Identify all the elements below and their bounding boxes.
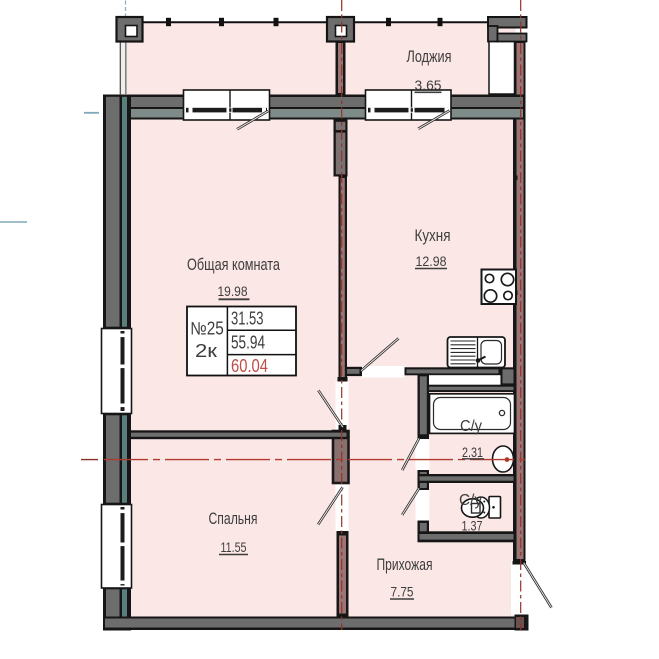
svg-text:С/у: С/у <box>460 418 482 435</box>
svg-text:№25: №25 <box>190 319 224 339</box>
svg-text:Лоджия: Лоджия <box>407 48 452 66</box>
svg-text:11.55: 11.55 <box>221 539 247 555</box>
svg-text:3.65: 3.65 <box>415 77 442 93</box>
svg-text:2к: 2к <box>195 341 217 361</box>
svg-text:1.37: 1.37 <box>462 518 483 534</box>
svg-text:55.94: 55.94 <box>231 332 265 353</box>
svg-text:60.04: 60.04 <box>231 355 268 376</box>
svg-text:Кухня: Кухня <box>415 227 451 245</box>
svg-text:С/у: С/у <box>459 492 482 509</box>
svg-text:7.75: 7.75 <box>391 584 414 600</box>
svg-text:19.98: 19.98 <box>218 283 248 299</box>
svg-text:12.98: 12.98 <box>416 253 447 269</box>
svg-text:2.31: 2.31 <box>462 444 483 460</box>
svg-text:Общая комната: Общая комната <box>187 256 281 274</box>
svg-text:Прихожая: Прихожая <box>377 556 433 574</box>
svg-text:31.53: 31.53 <box>231 307 264 328</box>
svg-text:Спальня: Спальня <box>209 510 258 528</box>
